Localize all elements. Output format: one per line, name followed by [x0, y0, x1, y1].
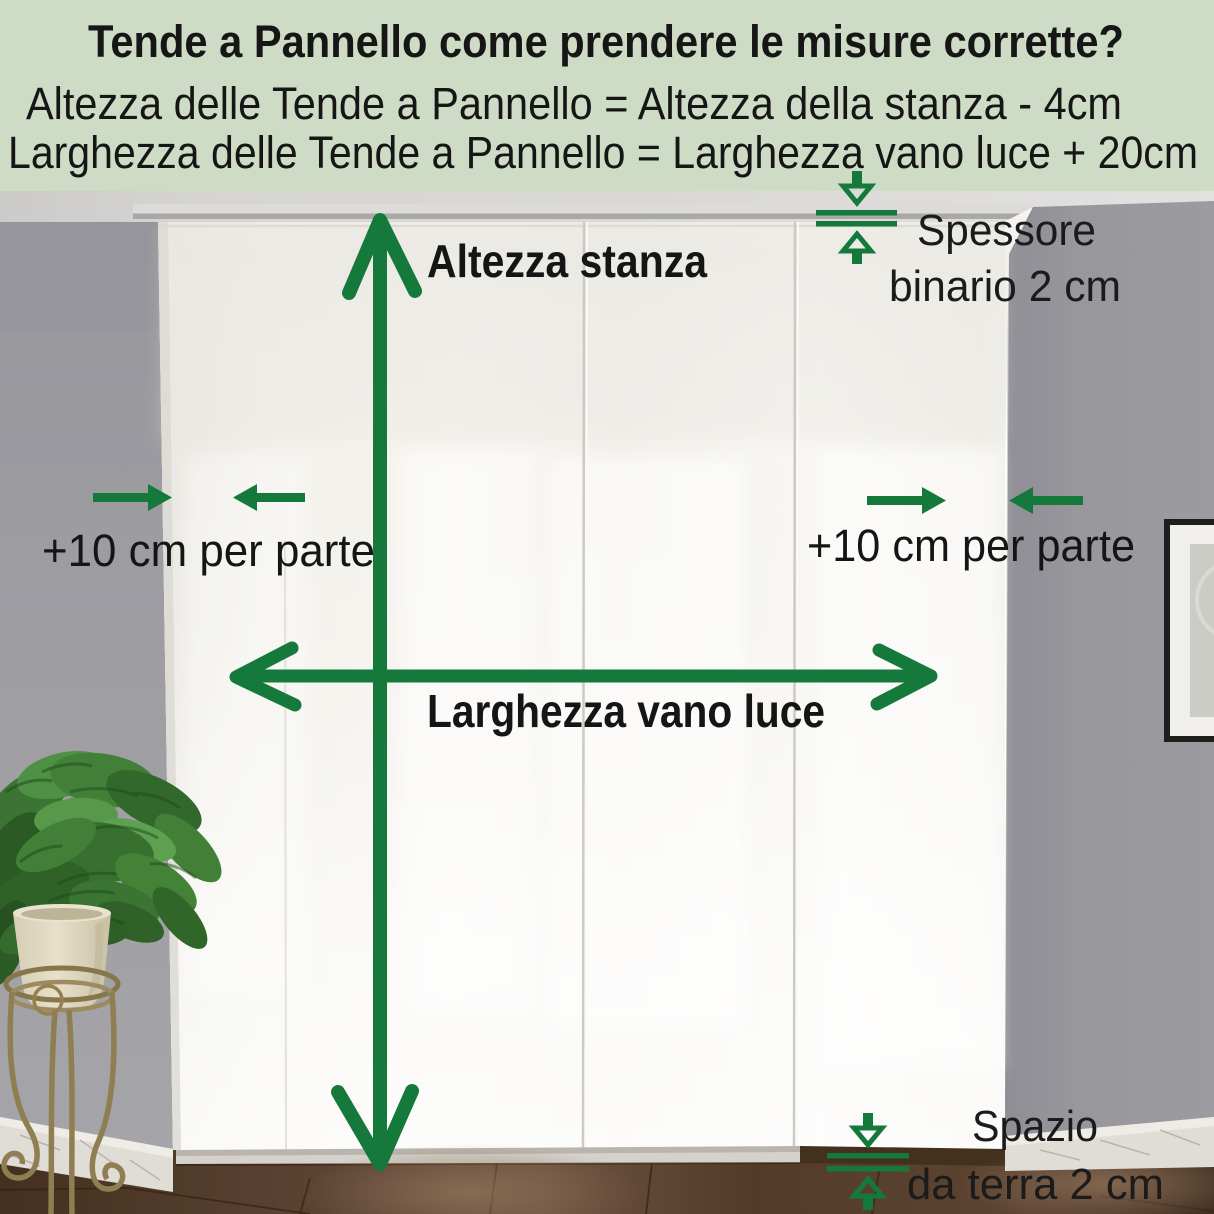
svg-text:binario 2 cm: binario 2 cm: [889, 262, 1121, 311]
svg-text:Larghezza vano luce: Larghezza vano luce: [427, 685, 825, 737]
svg-text:Spazio: Spazio: [972, 1102, 1098, 1151]
svg-text:Spessore: Spessore: [917, 206, 1096, 255]
svg-text:+10 cm per parte: +10 cm per parte: [42, 525, 375, 576]
svg-text:Altezza delle Tende a Pannello: Altezza delle Tende a Pannello = Altezza…: [26, 78, 1122, 129]
svg-text:+10 cm per parte: +10 cm per parte: [807, 520, 1135, 571]
svg-text:Altezza stanza: Altezza stanza: [427, 235, 707, 287]
svg-text:Larghezza delle Tende a Pannel: Larghezza delle Tende a Pannello = Largh…: [8, 127, 1198, 178]
svg-text:Tende a Pannello come prendere: Tende a Pannello come prendere le misure…: [88, 16, 1124, 67]
svg-text:da terra 2 cm: da terra 2 cm: [907, 1160, 1164, 1209]
